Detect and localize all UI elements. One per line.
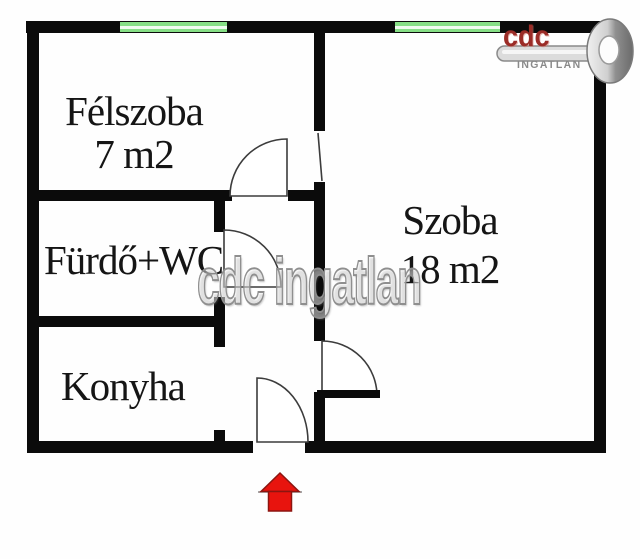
logo-brand-text: cdc — [503, 20, 550, 54]
room-name: Konyha — [61, 365, 185, 408]
room-label-konyha: Konyha — [61, 365, 185, 408]
room-area: 7 m2 — [31, 133, 237, 176]
closed-door-line — [318, 133, 322, 181]
room-name: Félszoba — [31, 90, 237, 133]
logo-subtitle-text: INGATLAN — [517, 59, 582, 71]
door-swing-szoba — [322, 341, 377, 396]
watermark-text: cdc ingatlan — [197, 243, 421, 319]
door-leaf-szoba — [317, 390, 380, 398]
floor-plan: Félszoba 7 m2 Fürdő+WC Konyha Szoba 18 m… — [0, 0, 640, 559]
room-name: Szoba — [347, 196, 553, 245]
door-swing-entrance — [257, 378, 308, 442]
window-marker-right — [395, 22, 500, 32]
room-label-felszoba: Félszoba 7 m2 — [31, 90, 237, 176]
door-swing-felszoba — [230, 139, 287, 196]
entrance-arrow-icon — [258, 473, 302, 511]
window-marker-left — [120, 22, 227, 32]
